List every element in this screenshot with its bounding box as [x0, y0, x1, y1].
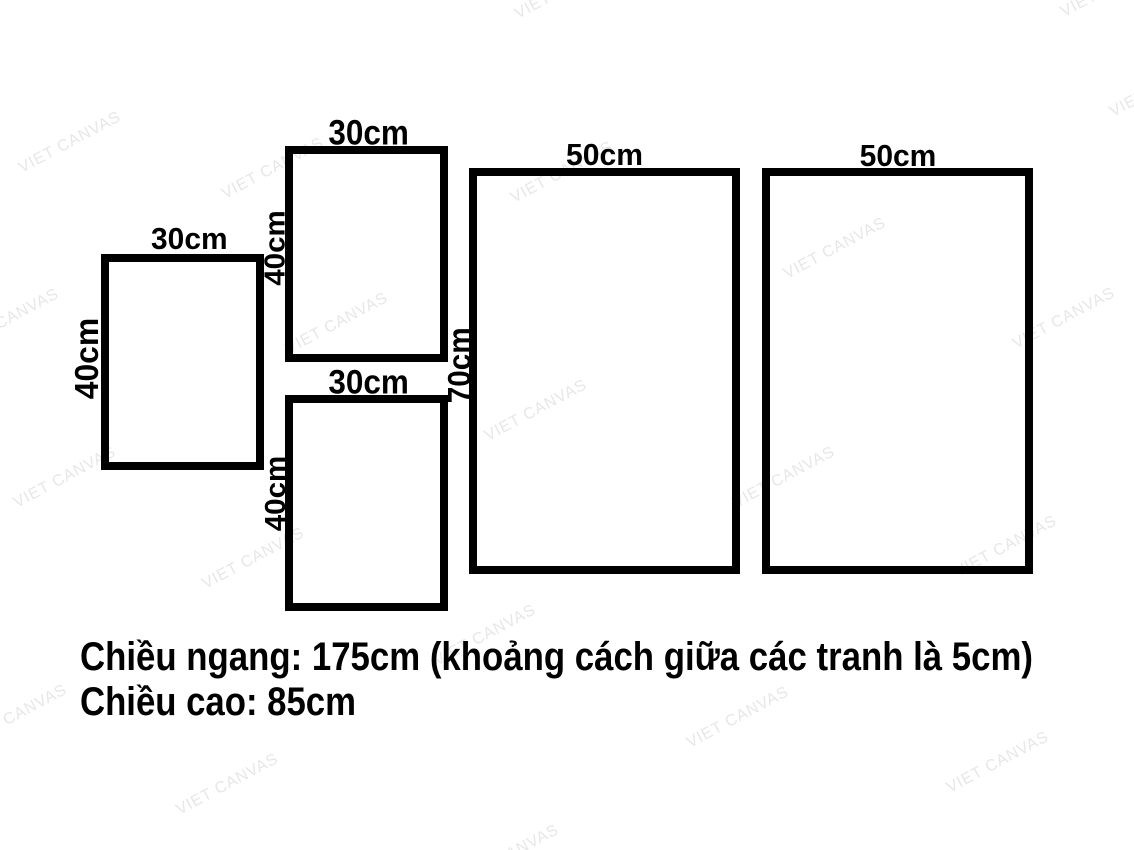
- svg-text:40cm: 40cm: [68, 318, 105, 400]
- svg-text:Chiều ngang: 175cm (khoảng các: Chiều ngang: 175cm (khoảng cách giữa các…: [80, 635, 1033, 679]
- svg-text:Chiều cao: 85cm: Chiều cao: 85cm: [80, 680, 356, 724]
- svg-text:30cm: 30cm: [328, 364, 409, 402]
- svg-text:50cm: 50cm: [860, 138, 937, 173]
- svg-text:40cm: 40cm: [260, 456, 292, 532]
- svg-text:30cm: 30cm: [328, 113, 409, 153]
- svg-text:70cm: 70cm: [442, 327, 478, 403]
- svg-text:40cm: 40cm: [260, 210, 292, 286]
- svg-text:30cm: 30cm: [151, 222, 228, 256]
- svg-text:50cm: 50cm: [566, 138, 643, 172]
